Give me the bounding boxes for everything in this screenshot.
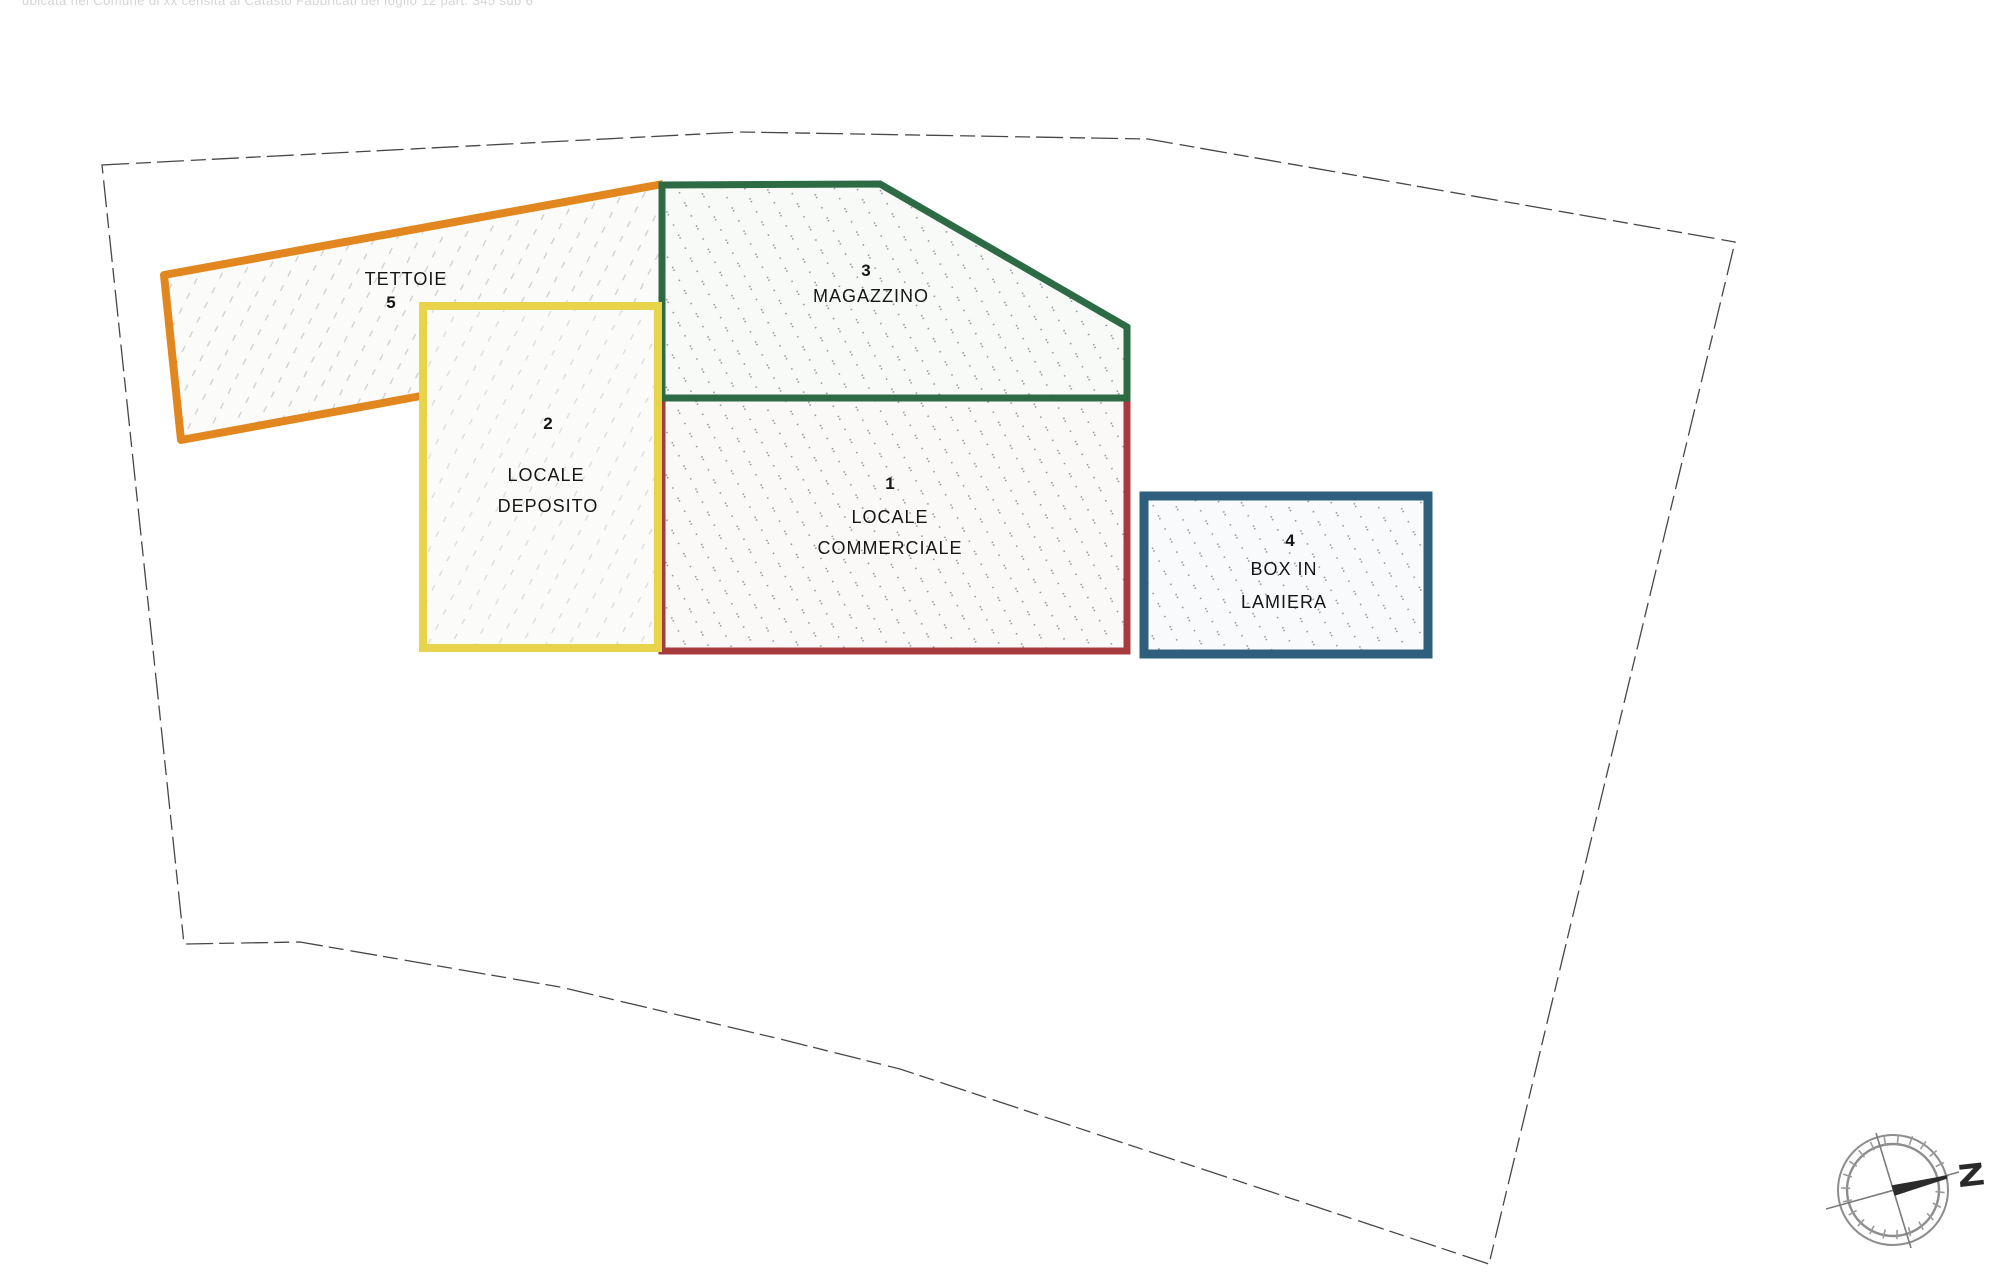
svg-text:1: 1: [885, 474, 894, 493]
svg-text:COMMERCIALE: COMMERCIALE: [817, 538, 962, 558]
svg-text:MAGAZZINO: MAGAZZINO: [813, 286, 929, 306]
svg-text:LOCALE: LOCALE: [851, 507, 928, 527]
svg-text:4: 4: [1285, 531, 1295, 550]
svg-text:LOCALE: LOCALE: [507, 465, 584, 485]
svg-text:5: 5: [386, 293, 395, 312]
svg-text:LAMIERA: LAMIERA: [1241, 592, 1327, 612]
svg-text:BOX IN: BOX IN: [1250, 559, 1317, 579]
svg-text:ubicata nel Comune di xx censi: ubicata nel Comune di xx censita al Cata…: [22, 0, 533, 8]
svg-text:DEPOSITO: DEPOSITO: [498, 496, 599, 516]
svg-text:2: 2: [543, 414, 552, 433]
svg-text:3: 3: [861, 261, 870, 280]
svg-text:TETTOIE: TETTOIE: [365, 269, 448, 289]
